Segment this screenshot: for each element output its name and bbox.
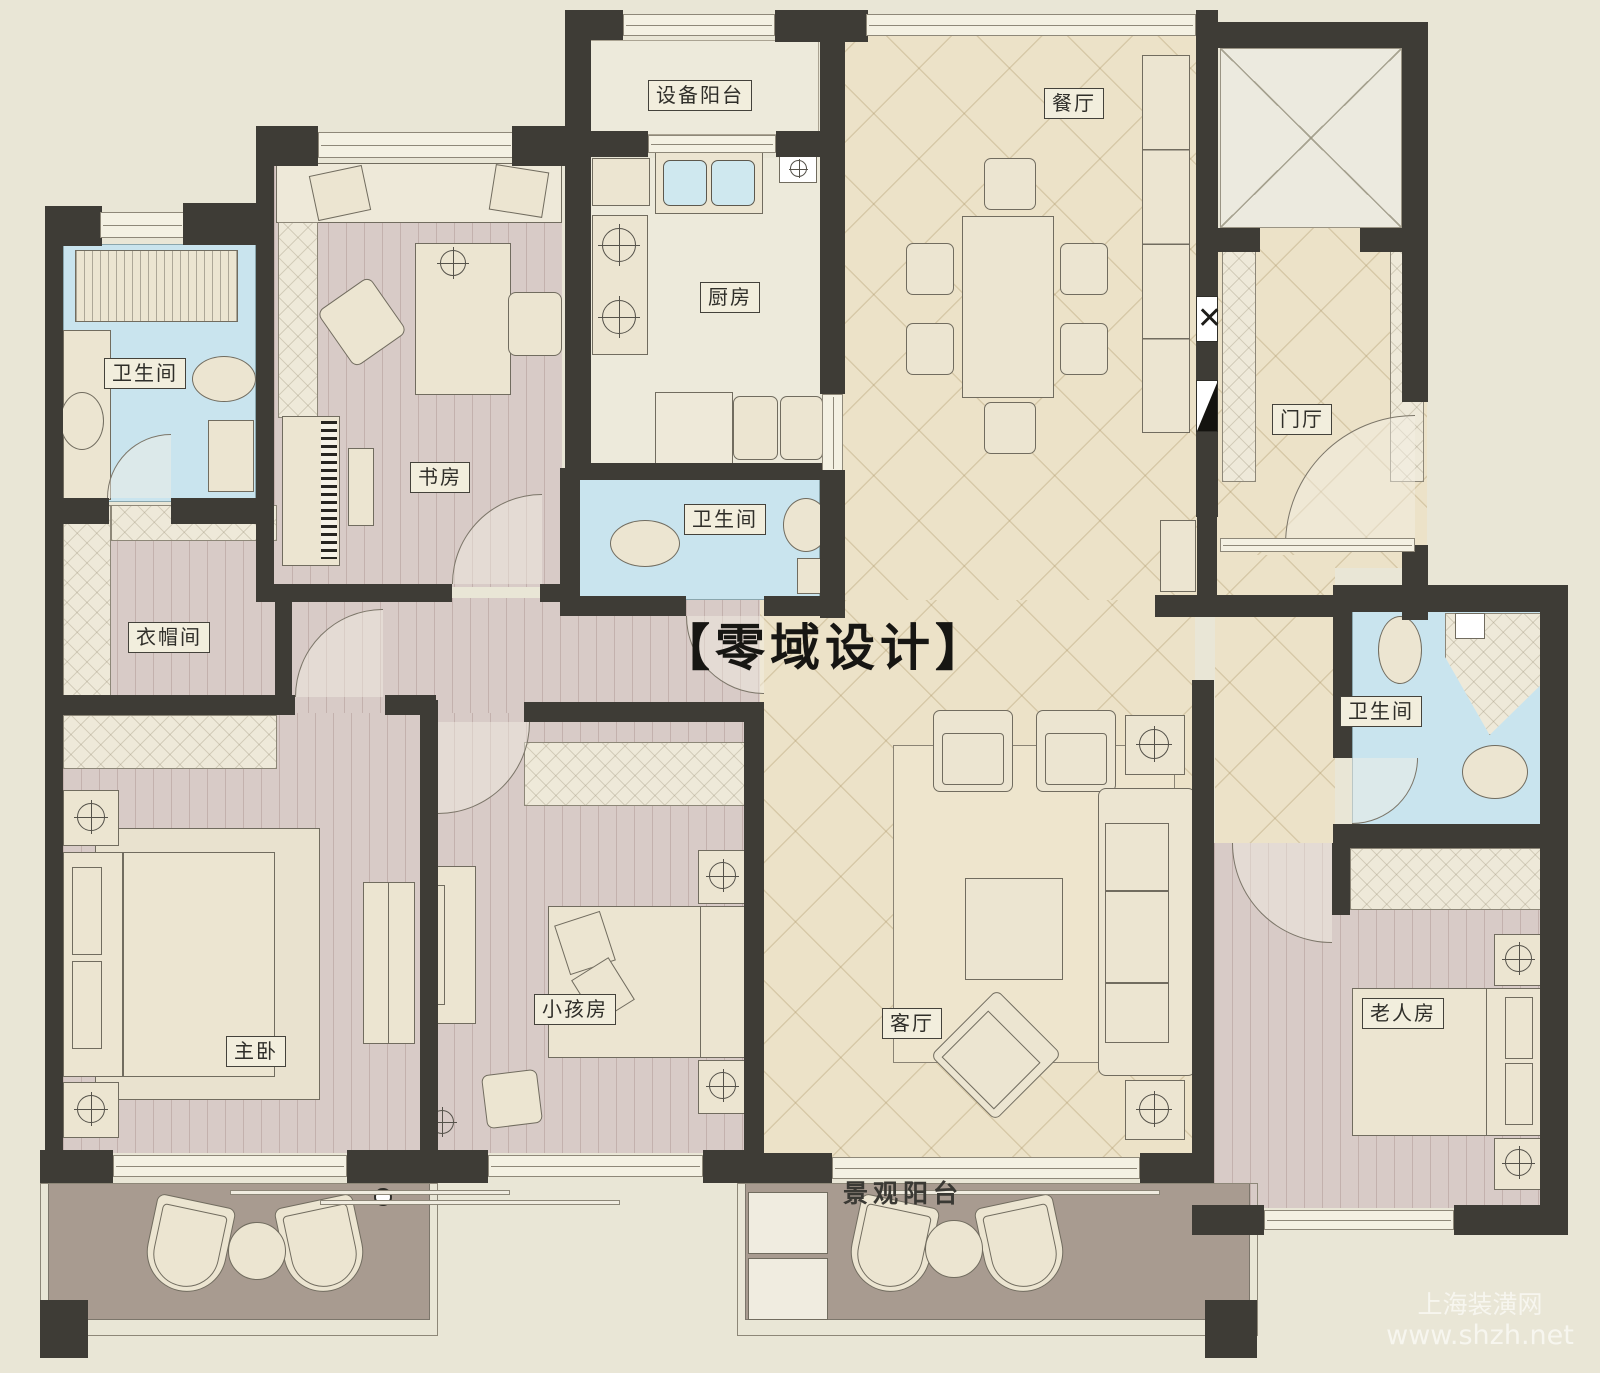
kids-chair <box>481 1069 543 1129</box>
wall <box>590 131 648 157</box>
sill-mark <box>320 1200 620 1205</box>
wall <box>740 1153 832 1183</box>
section-triangle <box>1197 383 1217 431</box>
wall <box>1333 610 1352 758</box>
lamp-symbol <box>1139 1094 1169 1124</box>
window <box>1220 538 1415 552</box>
dining-chair <box>1060 323 1108 375</box>
room-label-foyer: 门厅 <box>1272 404 1332 435</box>
shaft-symbol: ✕ <box>1196 296 1218 342</box>
blanket-line <box>700 907 702 1057</box>
toilet <box>610 520 680 567</box>
wall <box>1196 22 1426 48</box>
coffee-table <box>965 878 1063 980</box>
sofa-cushion <box>1105 891 1169 983</box>
dining-table <box>962 216 1054 398</box>
pillow <box>1505 997 1533 1059</box>
window <box>1264 1210 1454 1230</box>
room-label-bath-top-left: 卫生间 <box>104 358 186 389</box>
window <box>113 1155 347 1177</box>
sink <box>1462 745 1528 799</box>
wall <box>40 1150 113 1183</box>
sill-mark <box>230 1190 510 1195</box>
wall <box>1192 1205 1264 1235</box>
wall <box>524 702 746 722</box>
wall <box>256 126 274 244</box>
kitchen-step <box>655 392 733 466</box>
room-label-equipment-balcony: 设备阳台 <box>648 80 752 111</box>
wall <box>171 498 258 524</box>
washing-machine <box>748 1258 828 1320</box>
dining-chair <box>984 402 1036 454</box>
room-label-kitchen: 厨房 <box>700 282 760 313</box>
window <box>100 212 185 238</box>
master-dresser <box>363 882 415 1044</box>
dining-chair <box>1060 243 1108 295</box>
room-label-study: 书房 <box>410 462 470 493</box>
dining-cabinet <box>1142 55 1190 433</box>
kitchen-stool-right <box>780 396 823 460</box>
elderly-wardrobe <box>1350 848 1542 910</box>
wall <box>1540 585 1568 1233</box>
ceiling-lamp-symbol <box>440 250 466 276</box>
floor-plan: ✕ 设备阳台 餐厅 厨房 卫生间 门厅 卫生间 书房 衣帽间 卫生间 主卧 小孩… <box>0 0 1600 1373</box>
radiator <box>75 250 238 322</box>
wall <box>1333 585 1545 612</box>
wall <box>1140 1153 1214 1183</box>
cloak-closet-left <box>63 505 111 700</box>
armchair <box>933 710 1013 792</box>
balcony-table <box>228 1222 286 1280</box>
kitchen-stool-left <box>733 396 778 460</box>
section-mark <box>1196 380 1218 432</box>
site-watermark-url: www.shzh.net <box>1370 1320 1590 1352</box>
lamp-symbol <box>77 803 105 831</box>
wall <box>1192 680 1214 1155</box>
burner-bottom <box>602 300 636 334</box>
sink <box>60 392 104 450</box>
wall <box>1402 232 1428 402</box>
fridge <box>592 158 650 206</box>
lamp-symbol <box>1139 729 1169 759</box>
window <box>318 132 514 158</box>
wall <box>1155 595 1335 617</box>
window <box>623 14 775 36</box>
lamp-symbol <box>77 1095 105 1123</box>
wall <box>565 10 591 470</box>
wall <box>1332 843 1350 915</box>
blanket-line <box>1486 989 1488 1135</box>
wall <box>820 470 845 618</box>
wall <box>578 463 822 480</box>
sliding-door <box>822 394 843 472</box>
laundry-sink <box>748 1192 828 1254</box>
bookshelf <box>278 222 318 418</box>
wall <box>45 695 295 715</box>
room-label-elderly: 老人房 <box>1362 998 1444 1029</box>
room-label-cloakroom: 衣帽间 <box>128 622 210 653</box>
room-label-living: 客厅 <box>882 1008 942 1039</box>
elevator-shaft <box>1220 48 1402 228</box>
lamp-symbol <box>709 1072 736 1099</box>
armchair-seat <box>1045 733 1107 785</box>
blanket-line <box>122 853 124 1076</box>
burner-top <box>602 228 636 262</box>
shower-mat <box>208 420 254 492</box>
room-label-view-balcony: 景观阳台 <box>843 1174 963 1210</box>
room-label-master: 主卧 <box>226 1036 286 1067</box>
piano-bench <box>348 448 374 526</box>
kids-bed <box>548 906 746 1058</box>
wall <box>744 702 764 1153</box>
wall <box>820 42 845 394</box>
sofa-cushion <box>1105 983 1169 1043</box>
wall <box>565 10 623 40</box>
lamp-symbol <box>1505 945 1532 972</box>
room-label-kids: 小孩房 <box>534 994 616 1025</box>
master-closet <box>63 715 277 769</box>
wall <box>1196 232 1218 517</box>
room-label-dining: 餐厅 <box>1044 88 1104 119</box>
window <box>488 1155 703 1177</box>
armchair-seat <box>942 733 1004 785</box>
sofa <box>1098 788 1196 1076</box>
lamp-symbol <box>1505 1149 1532 1176</box>
wall <box>347 1150 438 1183</box>
balcony-table <box>925 1220 983 1278</box>
window <box>866 14 1196 36</box>
kitchen-sink-bowl-right <box>711 160 755 206</box>
toilet <box>1378 616 1422 684</box>
gas-meter-dial <box>790 160 807 177</box>
window <box>648 135 776 153</box>
toilet <box>192 356 256 402</box>
shoe-cabinet <box>1160 520 1196 592</box>
wall <box>438 1150 488 1183</box>
piano-keys <box>321 421 337 559</box>
wall <box>183 203 259 245</box>
armchair <box>1036 710 1116 792</box>
desk-chair <box>508 292 562 356</box>
room-label-bath-right: 卫生间 <box>1340 696 1422 727</box>
seat-cushion <box>489 164 550 218</box>
wall <box>1205 1300 1257 1358</box>
pillow <box>72 867 102 955</box>
wall <box>1454 1205 1568 1235</box>
pillow <box>72 961 102 1049</box>
wall <box>775 10 868 42</box>
site-watermark-name: 上海装潢网 <box>1370 1290 1590 1320</box>
wall <box>40 1300 88 1358</box>
kids-wardrobe <box>524 742 746 806</box>
wall <box>45 498 63 1153</box>
lamp-symbol <box>709 862 736 889</box>
wall <box>560 468 580 600</box>
brand-watermark: 【零域设计】 <box>625 608 1025 680</box>
wall <box>1402 22 1428 232</box>
wall <box>1218 228 1260 252</box>
room-label-bath-middle: 卫生间 <box>684 504 766 535</box>
shower-shelf <box>1455 613 1485 639</box>
piano <box>282 416 340 566</box>
dining-chair <box>906 243 954 295</box>
wall <box>420 700 438 1153</box>
wall <box>256 240 274 586</box>
sofa-cushion <box>1105 823 1169 891</box>
wall <box>275 598 292 700</box>
kitchen-sink-bowl-left <box>663 160 707 206</box>
pillow <box>1505 1063 1533 1125</box>
wall <box>1333 824 1543 848</box>
foyer-closet-left <box>1222 244 1256 482</box>
site-watermark: 上海装潢网 www.shzh.net <box>1370 1290 1590 1352</box>
dining-chair <box>906 323 954 375</box>
dining-chair <box>984 158 1036 210</box>
